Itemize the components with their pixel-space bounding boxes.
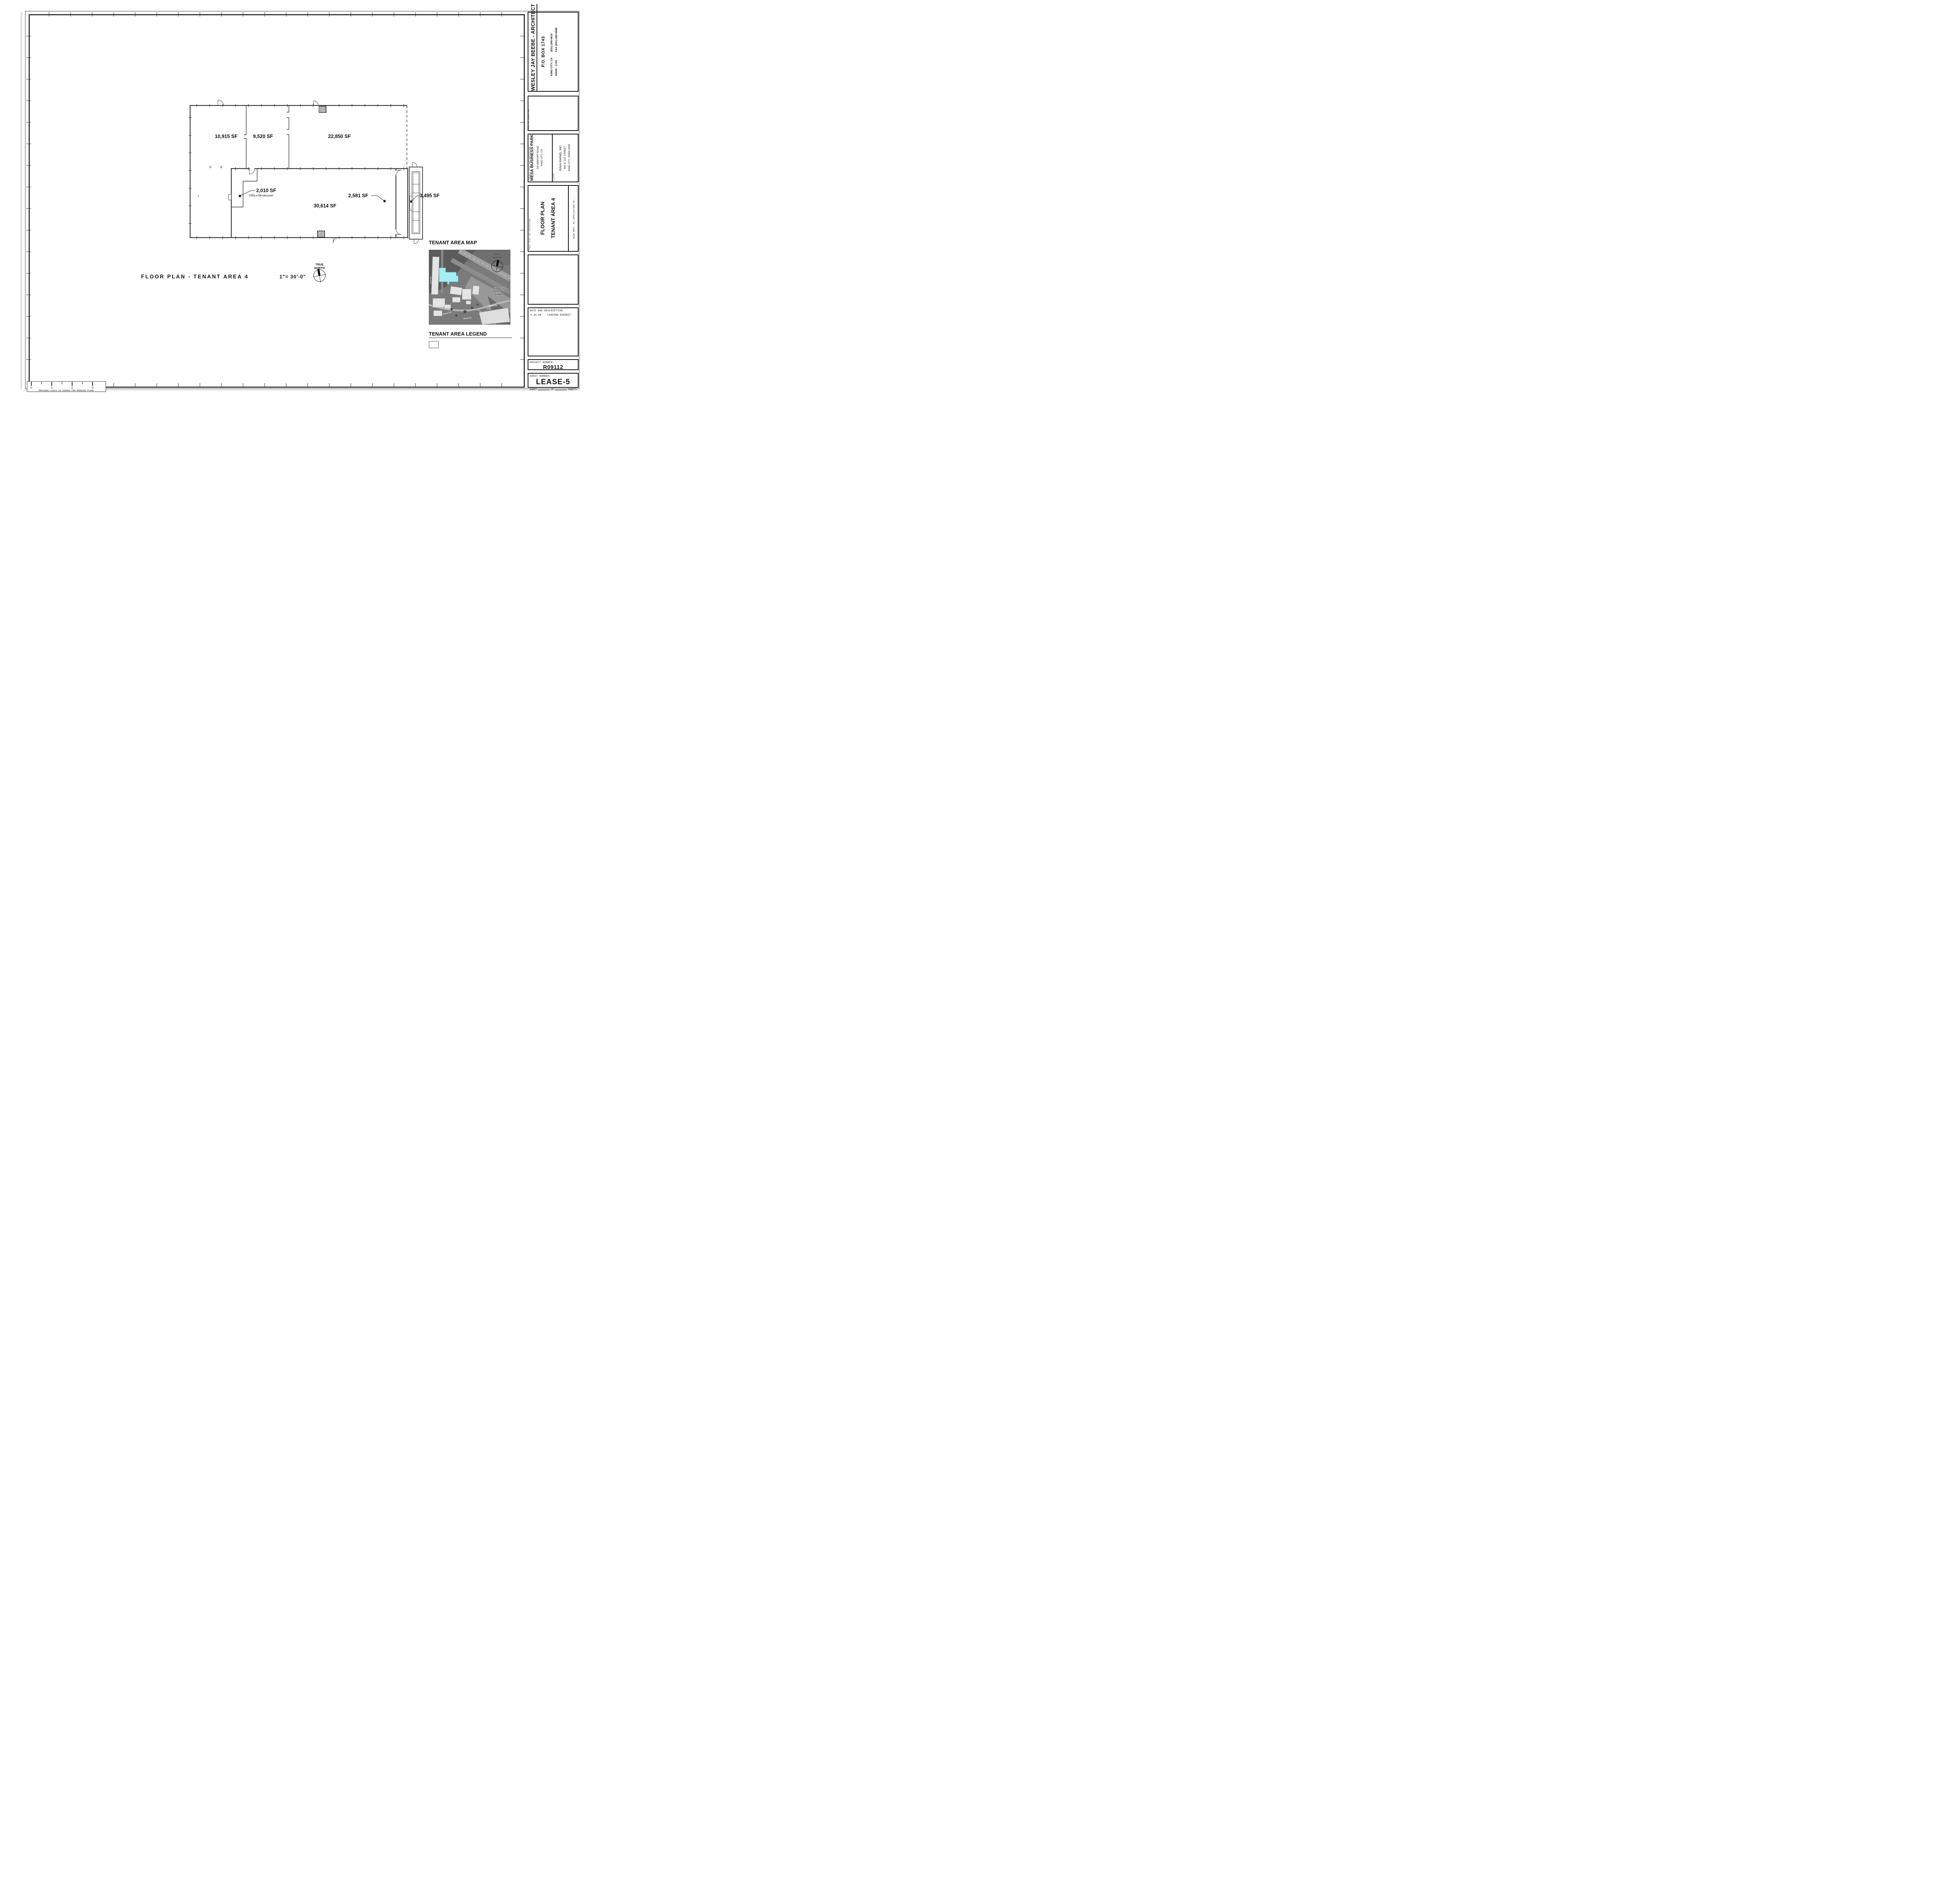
svg-text:NORTH: NORTH [492,256,501,259]
room-label-2010: 2,010 SF [256,188,276,193]
architect-phone: (831)-385-0810 [550,27,554,52]
room-label-2581: 2,581 SF [348,193,368,198]
drawing-sheet: 10,915 SF 9,520 SF 22,850 SF 2,010 SF 30… [0,0,588,392]
titleblock-empty [528,254,579,305]
titleblock-sheet-number: SHEET NUMBER: LEASE-5 SHEETOFSHEETS [528,373,579,388]
reduction-scale-ruler: 0 1 2 3 ORIGINAL SCALE IN INCHES FOR RED… [27,381,106,392]
date-header: DATE AND DESCRIPTION: [528,308,578,312]
titleblock-seal: SEAL OR CONSULTANT [528,96,579,131]
map-title: TENANT AREA MAP [429,240,477,245]
architect-pobox: P.O. BOX 1743 [541,13,546,91]
svg-text:TRUE: TRUE [316,263,323,266]
legend-swatch [429,341,439,348]
client-address1: 404 S. 1ST STREET [563,134,568,181]
room-label-22850: 22,850 SF [328,134,351,139]
titleblock-sheet-title: SHEET TITLE AND DESCRIPTION: FLOOR PLAN … [528,185,579,252]
room-label-10915: 10,915 SF [215,134,238,139]
annex-structure [409,167,423,239]
room-label-3495: 3,495 SF [420,193,440,198]
ruler-tick-0: 0 [31,386,32,389]
project-address1: 700 AIRPORT ROAD [536,134,540,181]
plan-title: FLOOR PLAN - TENANT AREA 4 [141,274,249,280]
titleblock-architect: WESLEY JAY BEEBE - ARCHITECT P.O. BOX 17… [528,12,579,92]
map-airport-name-3: Airport [495,294,503,296]
map-metz-rd-label: Metz Rd [430,277,432,284]
date-description: LEASING EXHIBIT [548,314,571,316]
office-breakroom-label: Office/Breakroom [249,193,274,197]
project-number-value: R09112 [528,364,578,370]
project-number-label: PROJECT NUMBER: [528,360,578,364]
map-airport-name-2: Municipal [493,291,504,293]
client-address2: KING CITY, 93930-2938 [568,134,572,181]
bldg-dept-label: BLDG DEPT. No./APPLICATION No. : [569,175,575,240]
room-label-30614: 30,614 SF [314,203,336,209]
svg-text:TRUE: TRUE [494,253,501,256]
building-walls [190,105,408,238]
titleblock-dates: DATE AND DESCRIPTION: 4.29.09 LEASING EX… [528,307,579,356]
architect-name: WESLEY JAY BEEBE - ARCHITECT [530,4,537,91]
plan-scale: 1"= 30'-0" [279,274,306,280]
project-title-label: PROJECT TITLE AND DESCRIPTION: [529,145,531,180]
architect-zip: 93930 - 1743 [554,57,559,76]
date-value: 4.29.09 [530,314,541,316]
legend-underline [429,338,512,338]
sheet-title-line2: TENANT AREA 4 [548,186,559,251]
tenant-area-map: TRUE NORTH King City Municipal Airport M… [429,250,510,325]
sheet-title-label: SHEET TITLE AND DESCRIPTION: [529,218,531,250]
sheet-title-line1: FLOOR PLAN [537,186,548,251]
titleblock-project-number: PROJECT NUMBER: R09112 [528,359,579,370]
seal-label: SEAL OR CONSULTANT [528,109,530,129]
map-airport-name-1: King City [494,287,504,290]
ruler-caption: ORIGINAL SCALE IN INCHES FOR REDUCED PLA… [39,389,94,392]
sheet-number-value: LEASE-5 [528,378,578,387]
floor-plan-drawing: 10,915 SF 9,520 SF 22,850 SF 2,010 SF 30… [0,0,588,392]
sheet-of-sheets: SHEETOFSHEETS [528,388,578,391]
legend-title: TENANT AREA LEGEND [429,331,487,337]
architect-city: KING CITY, CA [550,57,554,76]
client-label: CLIENT: [553,172,555,180]
stray-marks [198,166,222,196]
hatched-boxes [318,106,326,237]
architect-fax: FAX (831)-385-0688 [554,27,559,52]
door-swings [218,100,419,244]
sheet-number-label: SHEET NUMBER: [528,374,578,378]
client-name: RAVA FARMS, INC. [558,134,563,181]
room-label-9520: 9,520 SF [253,134,273,139]
true-north-compass-icon: TRUE NORTH [312,263,327,284]
date-entry: 4.29.09 LEASING EXHIBIT [528,312,578,316]
svg-text:NORTH: NORTH [314,266,325,270]
wall-column-ticks [189,104,404,239]
project-address2: KING CITY, CA [540,134,544,181]
